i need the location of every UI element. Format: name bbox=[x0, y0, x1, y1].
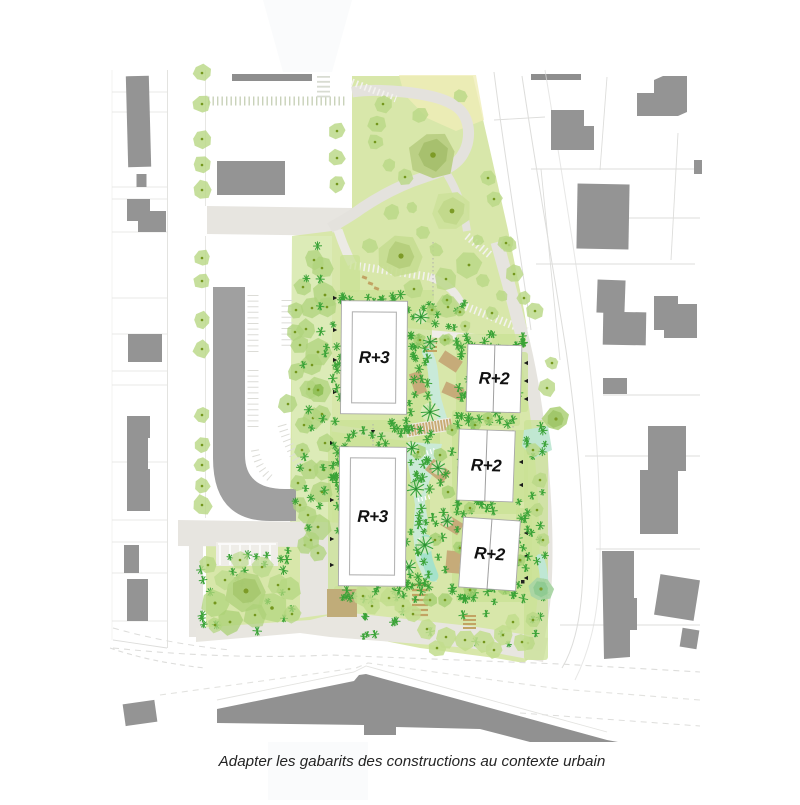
svg-text:R+2: R+2 bbox=[470, 455, 502, 475]
svg-text:R+3: R+3 bbox=[357, 507, 389, 526]
svg-text:Adapter les gabarits des const: Adapter les gabarits des constructions a… bbox=[218, 753, 606, 770]
svg-text:R+2: R+2 bbox=[474, 543, 507, 564]
svg-text:R+3: R+3 bbox=[359, 348, 391, 367]
svg-text:R+2: R+2 bbox=[479, 369, 511, 389]
